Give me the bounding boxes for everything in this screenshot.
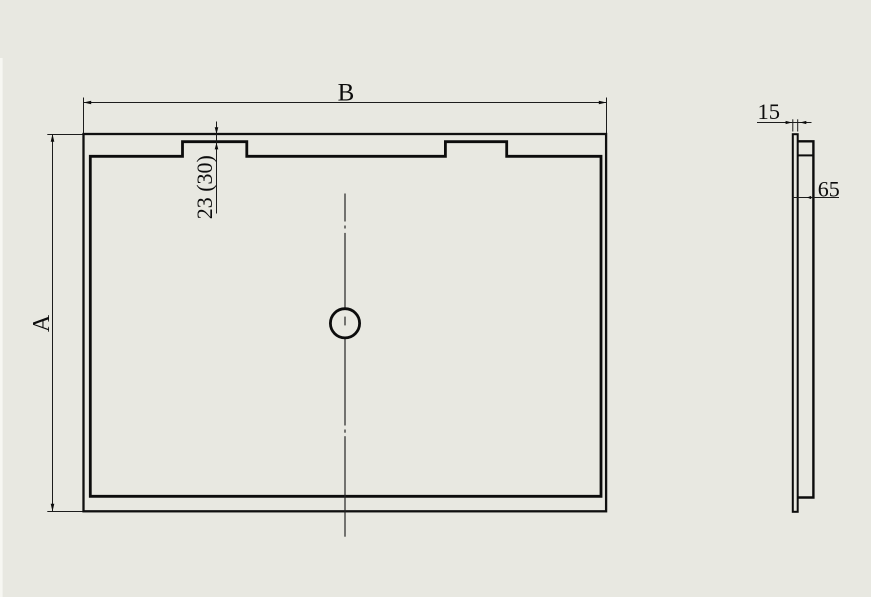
svg-text:A: A	[29, 314, 55, 332]
svg-text:23 (30): 23 (30)	[192, 155, 217, 219]
svg-text:65: 65	[818, 177, 840, 202]
svg-text:B: B	[338, 80, 355, 107]
svg-text:15: 15	[757, 99, 780, 124]
